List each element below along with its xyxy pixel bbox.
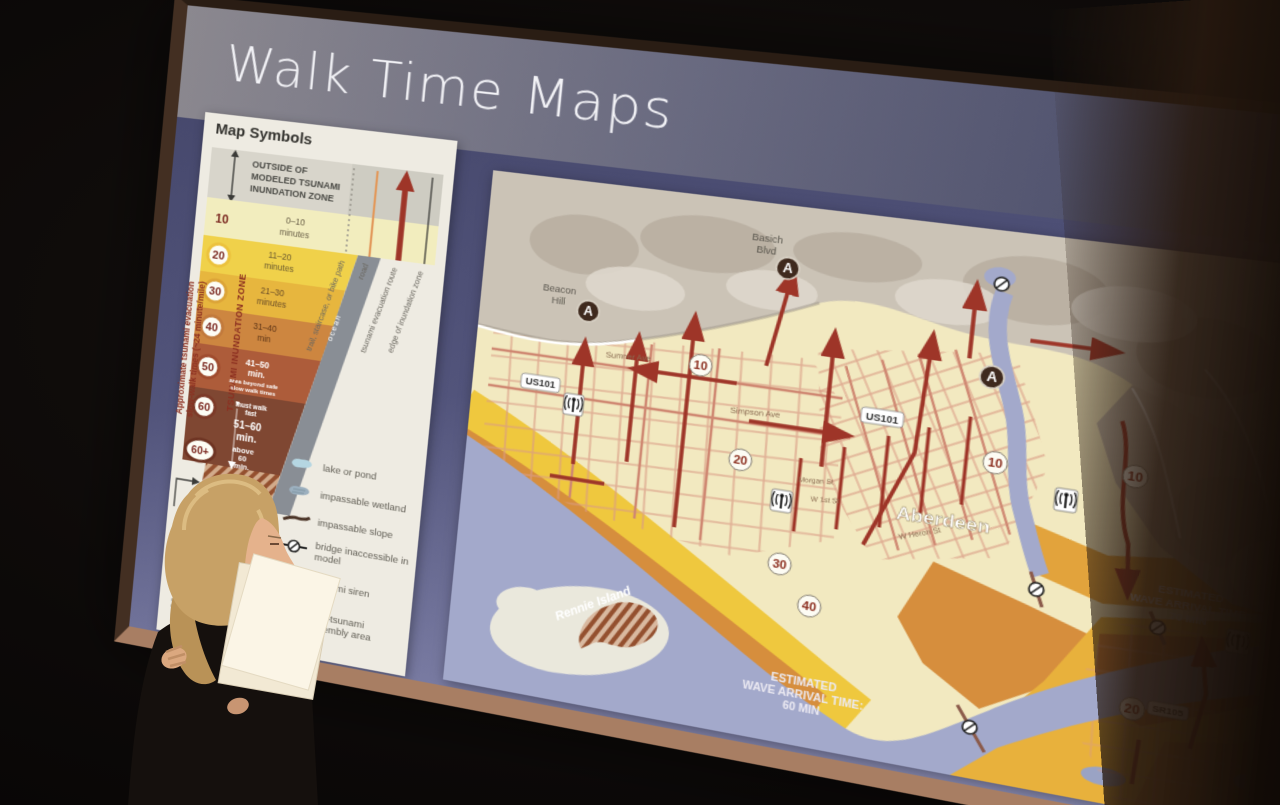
presenter xyxy=(88,460,362,805)
tsunami-siren-icon xyxy=(563,393,585,417)
bridge-inaccessible-icon xyxy=(994,277,1010,292)
walk-badge-10b: 10 xyxy=(987,457,1003,473)
tsunami-siren-icon xyxy=(1054,488,1079,514)
walk-badge-40: 40 xyxy=(801,600,817,615)
band40-label2: min xyxy=(257,332,272,344)
beacon-hill-label-2: Hill xyxy=(551,295,566,307)
walk-badge-20: 20 xyxy=(733,454,748,469)
legend-badge-30: 30 xyxy=(209,285,222,299)
basich-blvd-label-2: Blvd xyxy=(756,244,777,257)
legend-badge-50: 50 xyxy=(201,361,214,375)
tsunami-siren-icon xyxy=(770,489,793,514)
assembly-letter: A xyxy=(986,369,999,386)
walk-badge-10: 10 xyxy=(693,359,708,374)
walk-badge-30: 30 xyxy=(772,558,787,573)
presenter-figure xyxy=(88,460,362,805)
assembly-letter: A xyxy=(782,261,794,278)
assembly-letter: A xyxy=(583,304,594,320)
legend-badge-20: 20 xyxy=(212,249,225,263)
legend-badge-40: 40 xyxy=(205,321,218,335)
legend-badge-10: 10 xyxy=(215,211,230,227)
legend-badge-60: 60 xyxy=(198,400,211,414)
